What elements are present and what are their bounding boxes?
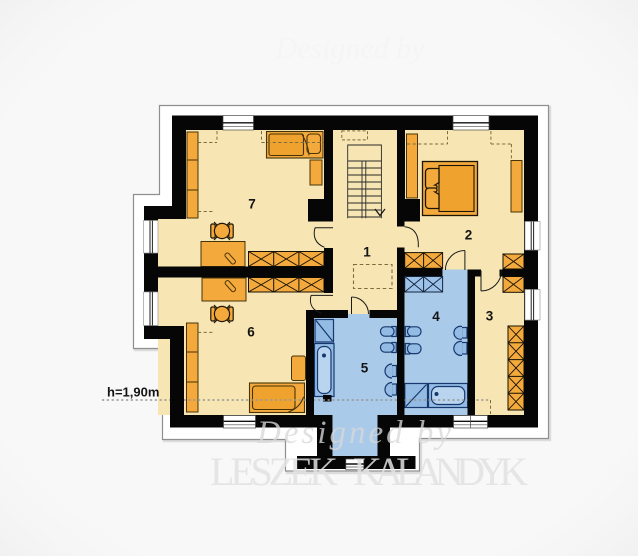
svg-text:7: 7	[248, 197, 256, 212]
svg-text:3: 3	[486, 309, 494, 324]
svg-text:5: 5	[361, 361, 369, 376]
svg-text:1: 1	[363, 245, 371, 260]
svg-text:2: 2	[465, 228, 473, 243]
svg-text:h=1,90m: h=1,90m	[107, 385, 159, 400]
svg-text:Designed by: Designed by	[256, 415, 451, 451]
svg-text:LESZEK: LESZEK	[210, 449, 341, 494]
svg-text:4: 4	[432, 309, 440, 324]
svg-text:6: 6	[247, 325, 255, 340]
svg-text:Designed by: Designed by	[274, 32, 425, 65]
svg-text:KALANDYK: KALANDYK	[353, 449, 531, 494]
